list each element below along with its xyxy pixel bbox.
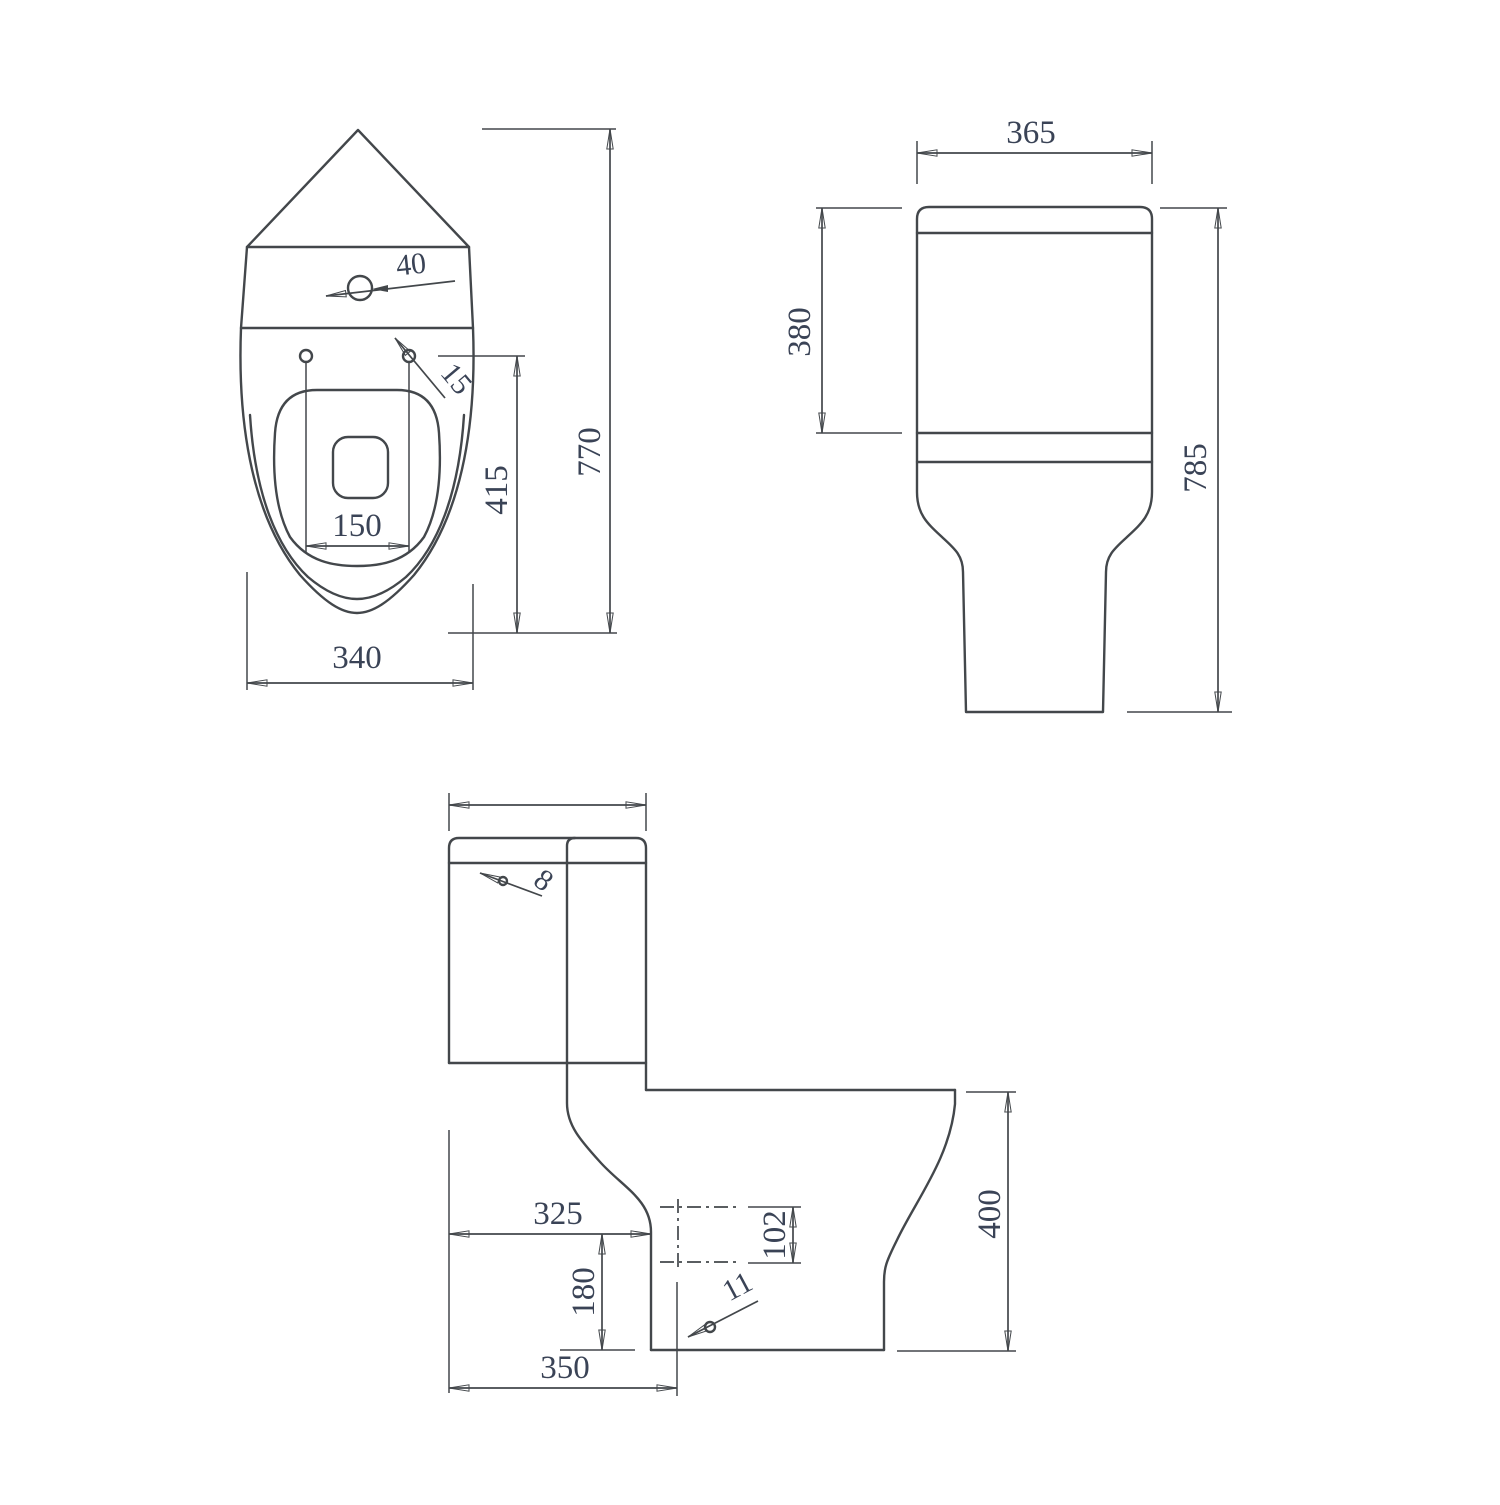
plan-lid-hole-leader	[326, 281, 455, 296]
plan-tank-band	[241, 247, 473, 328]
plan-corner-triangle	[247, 130, 469, 247]
dim-label-side-outlet-height: 180	[566, 1267, 602, 1317]
side-view: 8 102 325 180 11 350 400	[449, 793, 1016, 1396]
dim-label-side-rim-height: 400	[972, 1189, 1008, 1239]
plan-view: 40 15 150 415 770 340	[240, 129, 617, 690]
front-outline	[917, 207, 1152, 712]
technical-drawing: 40 15 150 415 770 340 365	[0, 0, 1500, 1500]
dim-label-front-height: 785	[1178, 443, 1214, 493]
dim-label-plan-hole-spacing: 150	[332, 508, 382, 544]
plan-seat-hole-leader	[395, 338, 445, 398]
dim-label-plan-seat-to-front: 415	[479, 465, 515, 515]
drawing-sheet: 40 15 150 415 770 340 365	[0, 0, 1500, 1500]
dim-label-side-outlet-bore: 102	[757, 1210, 793, 1260]
dim-label-front-cistern-height: 380	[782, 307, 818, 357]
dim-label-plan-hole-diameter: 40	[394, 247, 427, 283]
dim-label-side-outlet-setout: 325	[533, 1196, 583, 1232]
plan-bowl-rim-inner	[250, 415, 464, 599]
plan-flush-hole	[333, 437, 388, 498]
side-floor-fixing-leader	[688, 1301, 758, 1337]
dim-label-front-width: 365	[1006, 115, 1056, 151]
front-view: 365 380 785	[782, 115, 1232, 712]
side-outlet-pipe	[660, 1199, 737, 1268]
dim-label-side-floor-fixing: 11	[717, 1265, 758, 1308]
dim-label-plan-depth: 770	[572, 427, 608, 477]
plan-seat-hole-left	[300, 350, 312, 362]
dim-label-plan-width: 340	[332, 640, 382, 676]
dim-label-side-base-depth: 350	[540, 1350, 590, 1386]
plan-lid-hole	[348, 276, 372, 300]
side-bowl-rear-profile	[884, 1090, 955, 1350]
